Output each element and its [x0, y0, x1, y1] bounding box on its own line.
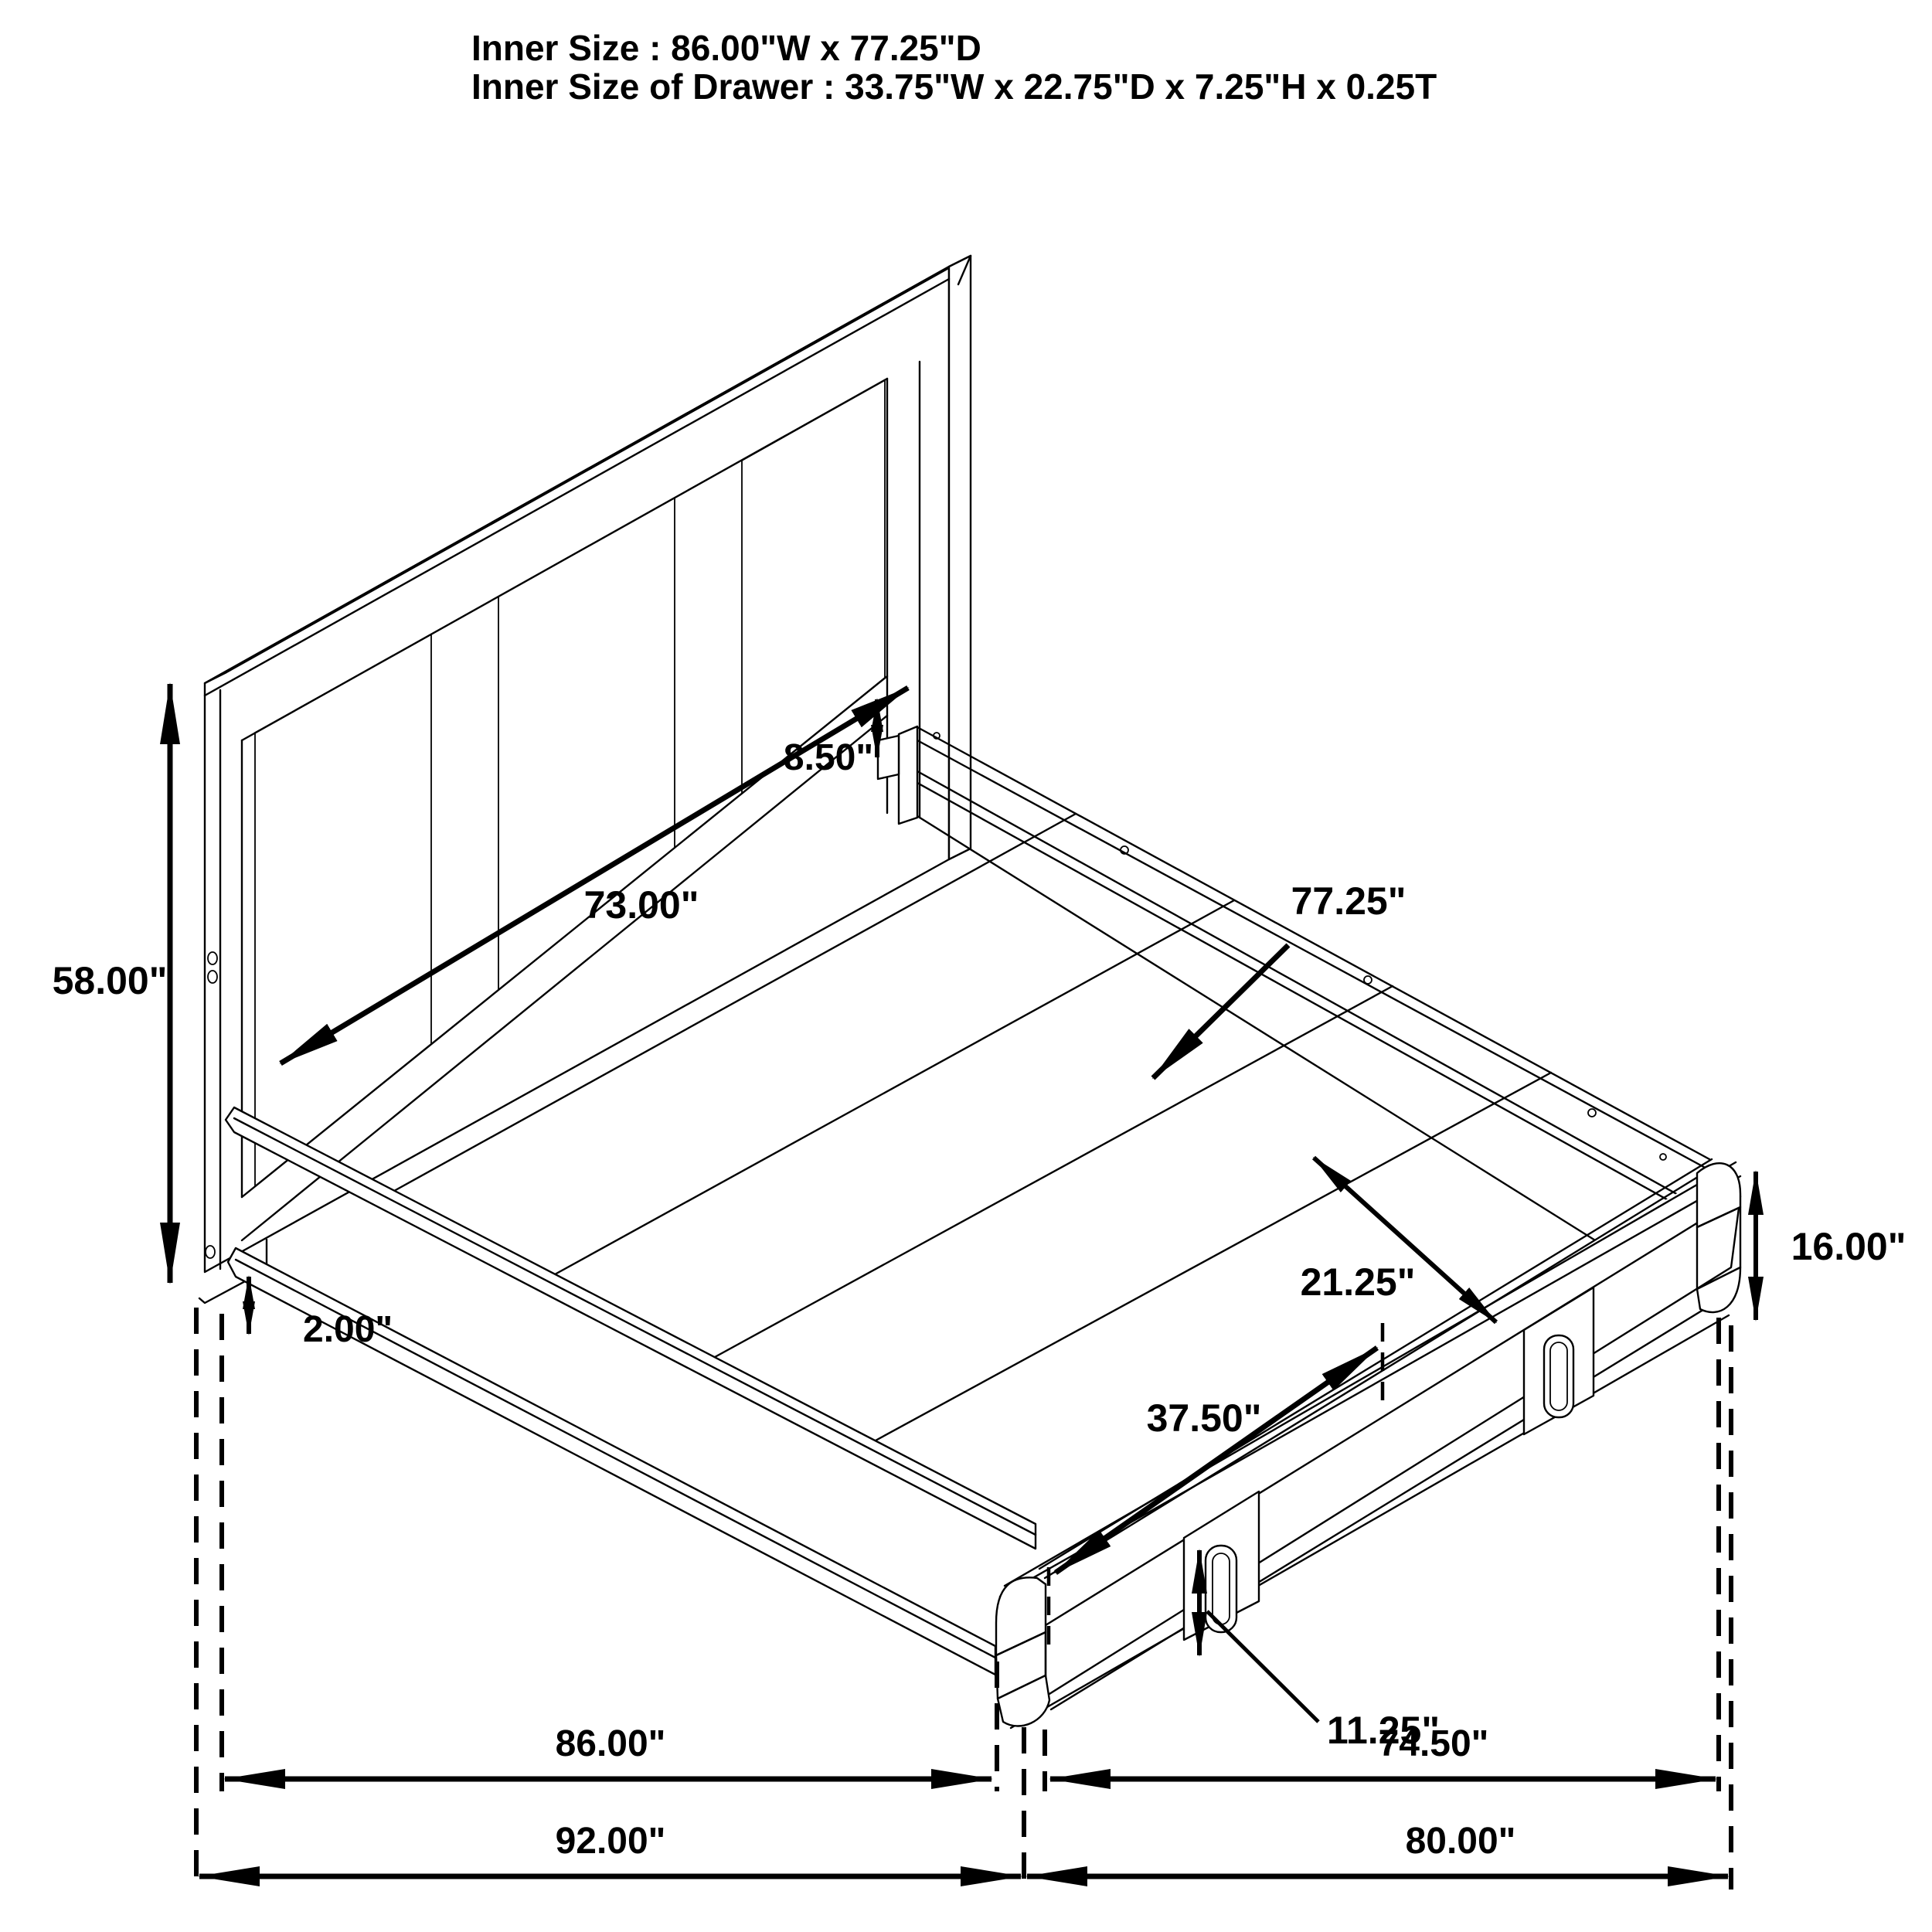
label-base-depth-inner: 74.50"	[1379, 1723, 1489, 1764]
footboard	[989, 1156, 1743, 1740]
label-drawer-width: 37.50"	[1147, 1396, 1262, 1440]
headboard	[199, 256, 971, 1303]
title-line-1: Inner Size : 86.00"W x 77.25"D	[471, 28, 981, 68]
drawer-handle-1	[1206, 1546, 1236, 1632]
bed-dimension-diagram: Inner Size : 86.00"W x 77.25"D Inner Siz…	[0, 0, 1932, 1932]
footboard-base	[989, 1156, 1743, 1740]
label-overall-depth: 80.00"	[1406, 1821, 1516, 1862]
title-line-2: Inner Size of Drawer : 33.75"W x 22.75"D…	[471, 66, 1437, 107]
rail-end-cap	[899, 726, 917, 824]
title-block: Inner Size : 86.00"W x 77.25"D Inner Siz…	[471, 28, 1437, 107]
deck-edge-inner	[917, 740, 1709, 1170]
drawer-handle-2	[1544, 1335, 1573, 1417]
headboard-side-face	[949, 256, 971, 859]
label-headboard-inner-width: 73.00"	[584, 883, 699, 927]
rail-top-edge	[917, 771, 1714, 1215]
rail-support-block	[878, 736, 899, 779]
label-base-clearance: 2.00"	[303, 1309, 393, 1350]
right-side-rail	[878, 726, 1714, 1306]
label-rail-gap: 8.50"	[784, 737, 873, 778]
arrow-platform-depth	[1153, 945, 1288, 1078]
label-rail-segment: 21.25"	[1301, 1260, 1416, 1304]
deck-edge-outer	[917, 727, 1709, 1159]
drawing-page: Inner Size : 86.00"W x 77.25"D Inner Siz…	[0, 0, 1932, 1932]
label-overall-width: 92.00"	[556, 1821, 666, 1862]
label-platform-depth: 77.25"	[1291, 879, 1406, 923]
label-base-width-inner: 86.00"	[556, 1723, 666, 1764]
leader-drawer-front-height	[1207, 1611, 1318, 1722]
label-footboard-height: 16.00"	[1791, 1225, 1906, 1268]
label-headboard-height: 58.00"	[53, 959, 168, 1002]
